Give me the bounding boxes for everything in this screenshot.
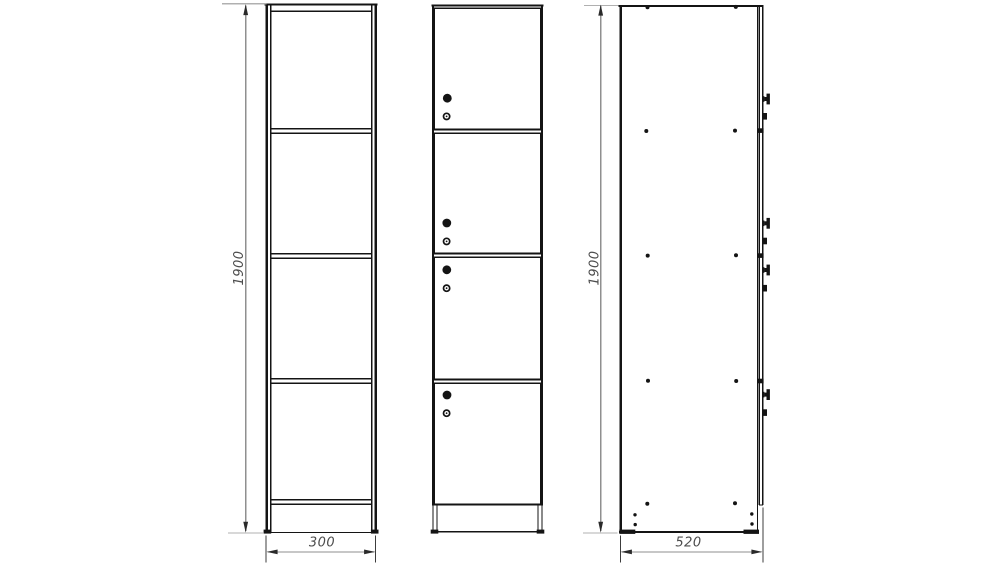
door-panel-2	[434, 133, 541, 253]
drawing-page: 1900 300 1900 520	[0, 0, 1000, 565]
screw-mark	[734, 253, 738, 257]
door-lock-1-pin	[446, 116, 448, 118]
door-knob-3	[442, 265, 451, 274]
technical-drawing-canvas: 1900 300 1900 520	[0, 0, 1000, 565]
screw-mark	[734, 5, 738, 9]
door-panel-4	[434, 383, 541, 504]
screw-mark	[646, 379, 650, 383]
screw-mark-small	[750, 522, 753, 525]
screw-mark	[644, 129, 648, 133]
screw-mark	[734, 379, 738, 383]
door-lock-2-pin	[446, 241, 448, 243]
doors-foot-right	[537, 530, 545, 534]
lock-profile	[763, 238, 767, 245]
lock-profile	[763, 113, 767, 120]
dim-label-front-height: 1900	[232, 250, 247, 285]
screw-mark	[733, 501, 737, 505]
door-knob-4	[443, 391, 452, 400]
lock-profile	[763, 285, 767, 292]
front-view-doors	[431, 6, 545, 534]
screw-mark-small	[633, 513, 636, 516]
dim-label-front-width: 300	[309, 536, 335, 551]
door-knob-2	[442, 219, 451, 228]
doors-foot-left	[431, 530, 439, 534]
screw-mark	[646, 254, 650, 258]
door-panel-1	[434, 8, 541, 129]
carcass-foot-right	[371, 530, 379, 534]
dim-label-side-height: 1900	[587, 250, 602, 285]
dim-label-side-depth: 520	[675, 536, 701, 551]
door-knob-1	[443, 94, 452, 103]
screw-mark-small	[634, 523, 637, 526]
screw-mark-small	[750, 512, 753, 515]
door-panel-3	[434, 257, 541, 379]
lock-profile	[763, 409, 767, 416]
side-foot-right	[744, 530, 760, 534]
side-foot-left	[619, 530, 635, 534]
door-gap-mark	[758, 253, 764, 258]
screw-mark	[645, 502, 649, 506]
screw-mark	[733, 129, 737, 133]
door-lock-4-pin	[446, 412, 448, 414]
door-gap-mark	[758, 379, 764, 384]
carcass-foot-left	[264, 530, 272, 534]
door-gap-mark	[758, 128, 764, 133]
door-lock-3-pin	[446, 287, 448, 289]
screw-mark	[646, 5, 650, 9]
